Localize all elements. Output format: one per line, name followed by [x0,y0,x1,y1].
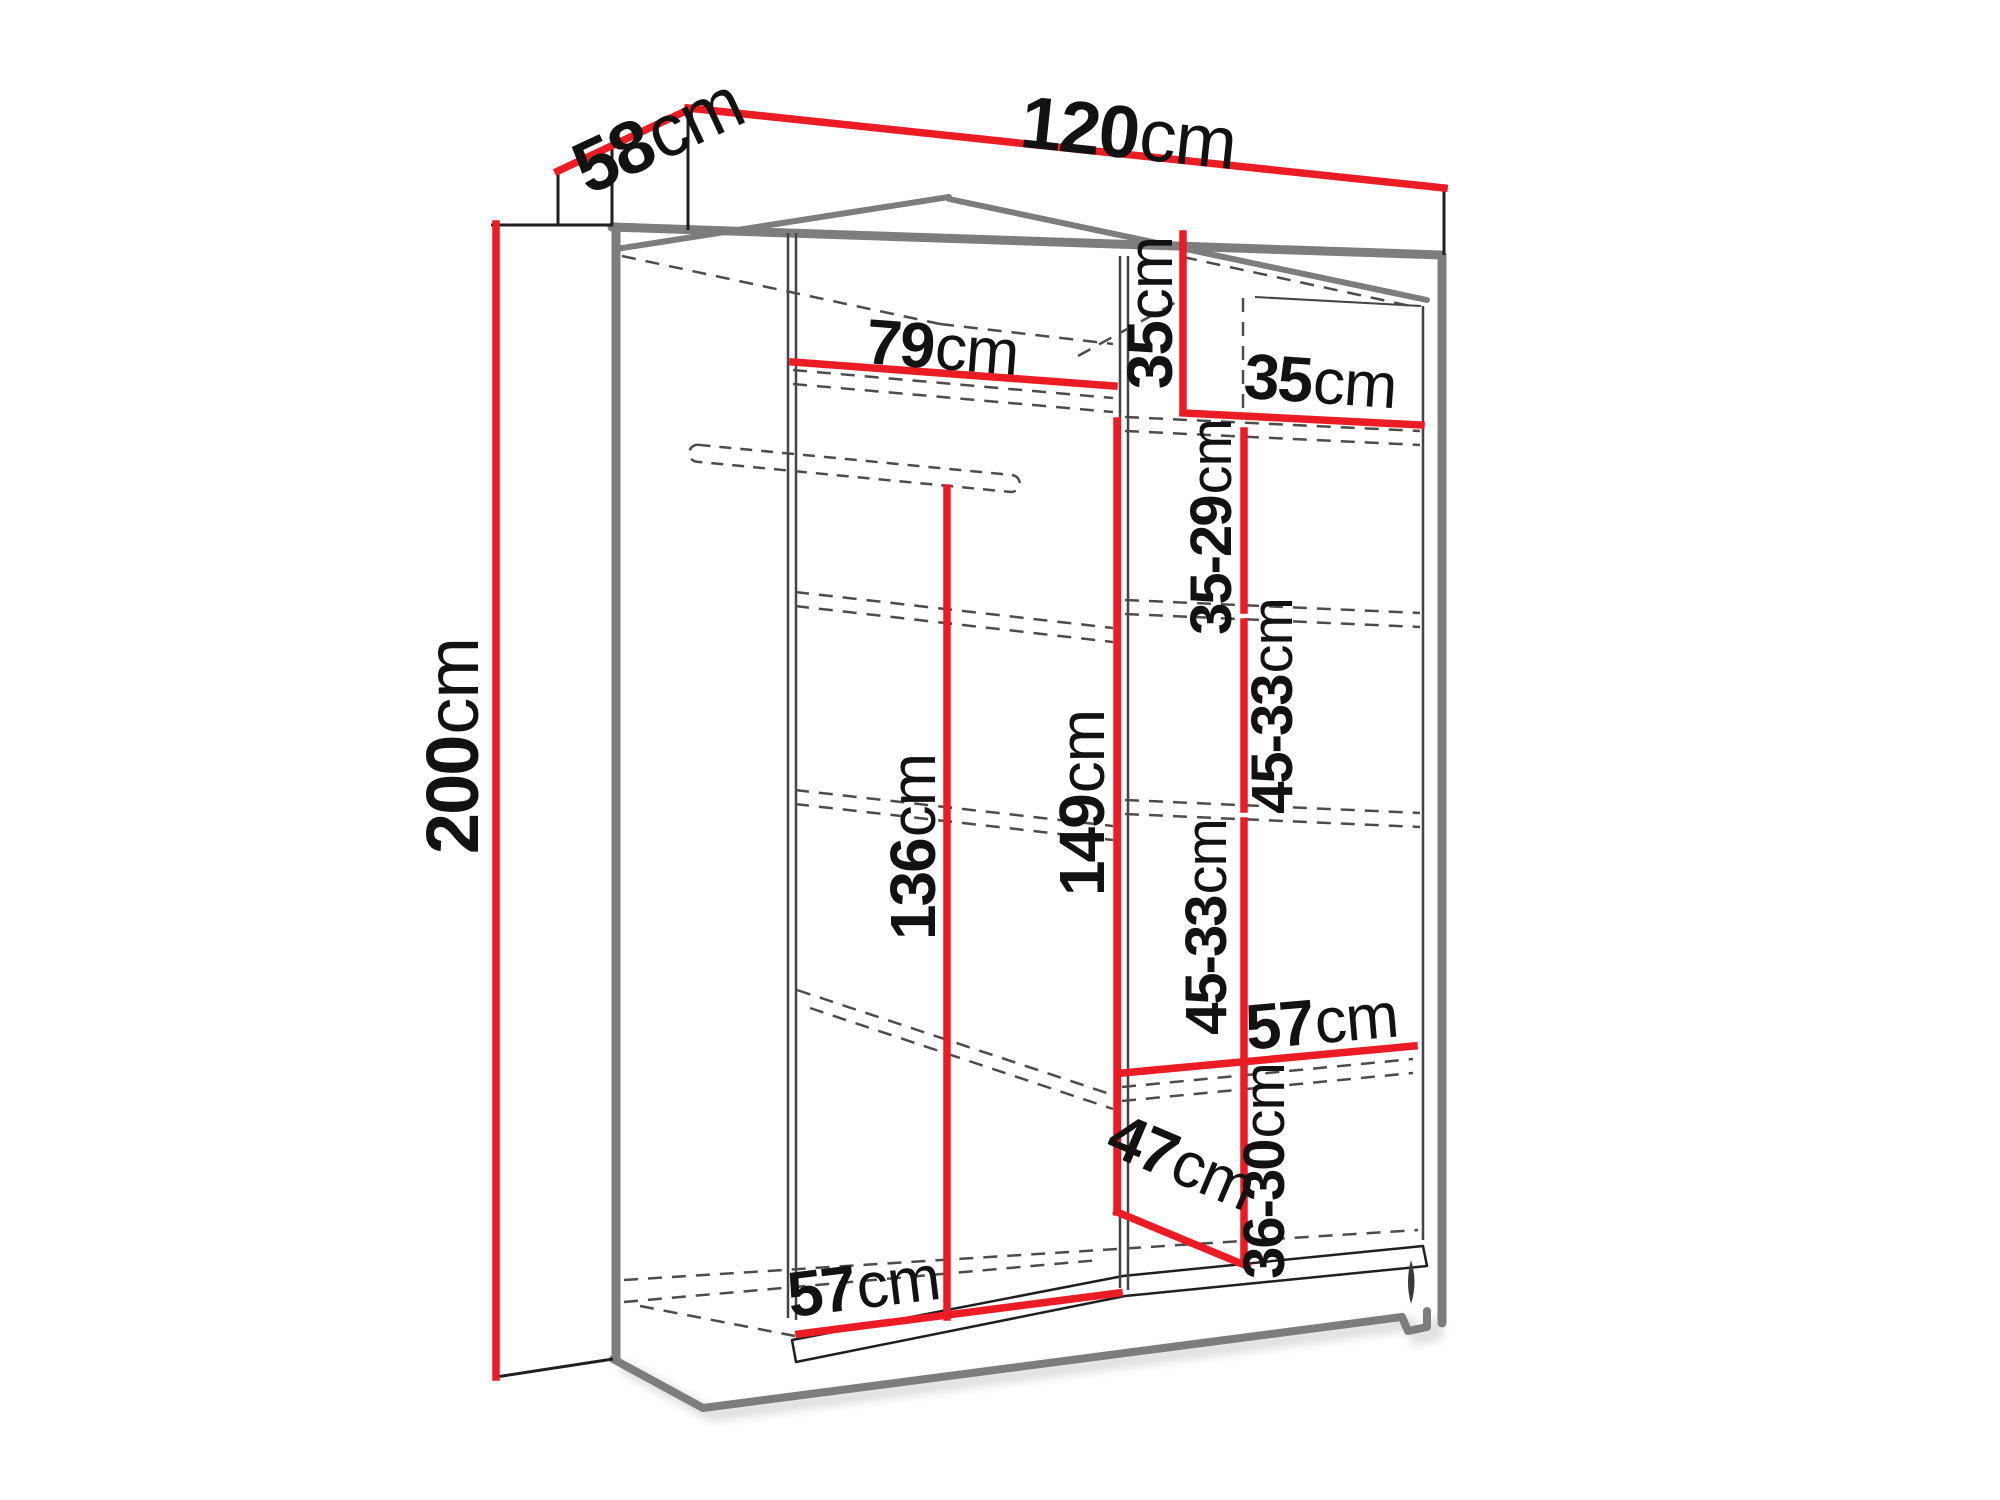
ceiling-back-left [616,197,949,249]
diag-line-47 [1117,1212,1247,1266]
shelf-a-back [1125,431,1420,445]
diagram-canvas: 58cm120cm200cm79cm35cm35cm35-29cm45-33cm… [0,0,2000,1500]
dim-label-gap-45-33-b: 45-33cm [1174,819,1239,1035]
ceiling-right-thin [1255,297,1421,306]
shelf-c-back [1125,814,1420,827]
shelf-d-left-a [797,990,1113,1095]
dim-label-clearance-149: 149cm [1046,710,1118,896]
hanging-rail [688,444,1020,493]
dim-label-clearance-136: 136cm [877,754,949,940]
dim-label-gap-45-33-a: 45-33cm [1240,598,1305,814]
dim-label-height-200: 200cm [411,638,494,854]
dim-label-cubby-width-35: 35cm [1242,340,1399,422]
dim-label-gap-35-29: 35-29cm [1179,419,1244,635]
wardrobe-dimension-diagram: 58cm120cm200cm79cm35cm35cm35-29cm45-33cm… [0,0,2000,1500]
shelf-b-left-b [795,606,1113,642]
dim-label-shelf-depth-57: 57cm [1242,978,1400,1063]
height-tick-bottom [496,1359,613,1377]
dim-label-cubby-height-35: 35cm [1114,237,1186,390]
dim-label-depth-58: 58cm [560,60,755,210]
top-shelf-back-b [793,384,1113,412]
dim-label-rail-width-79: 79cm [864,305,1022,389]
dim-label-width-120: 120cm [1017,80,1241,185]
shelf-d-left-b [810,1008,1113,1109]
shelf-b-left-a [795,592,1113,628]
shadow-layer [622,262,1451,1415]
floor-front-left [640,1306,795,1336]
